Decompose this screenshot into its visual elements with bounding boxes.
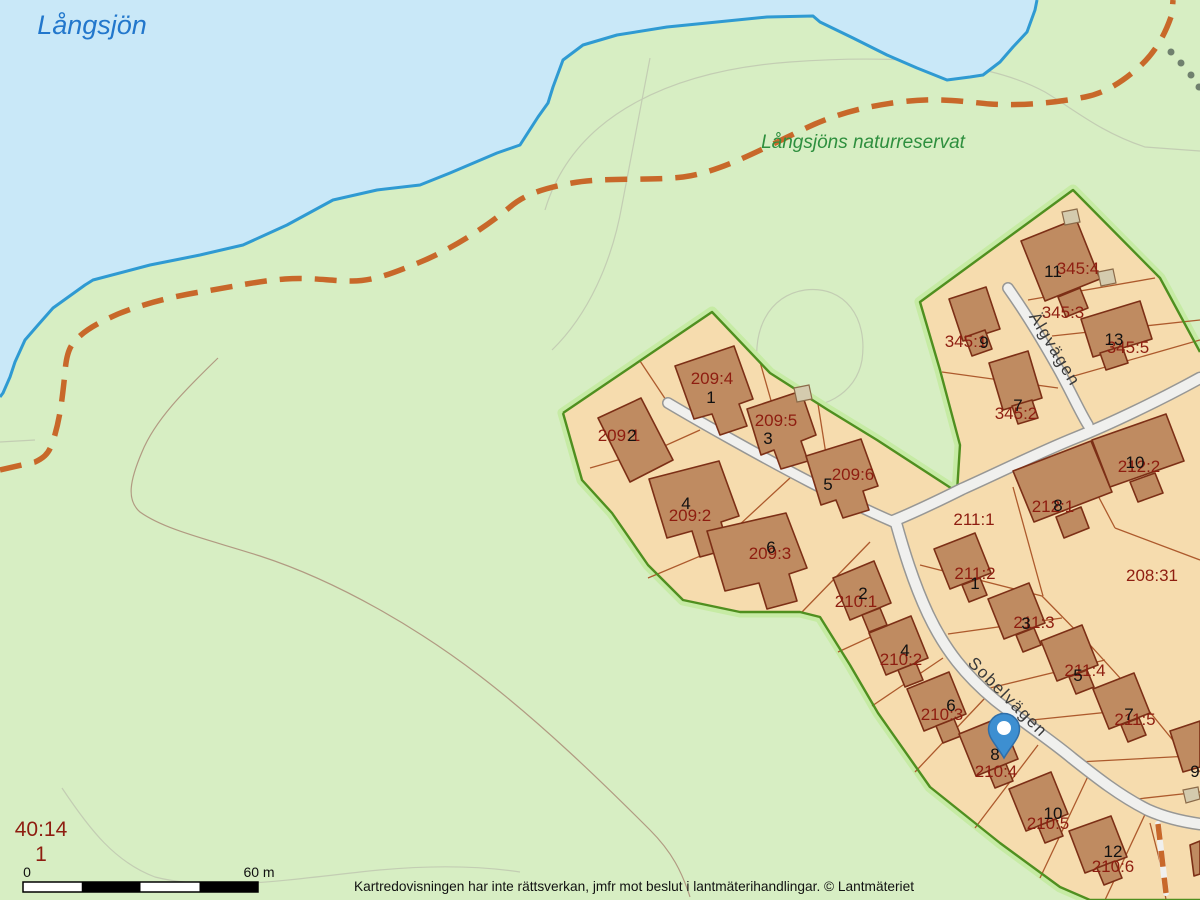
house-number: 9 bbox=[1190, 762, 1199, 781]
house-number: 7 bbox=[1013, 396, 1022, 415]
house-number: 2 bbox=[627, 426, 636, 445]
house-number: 10 bbox=[1126, 453, 1145, 472]
house-number: 4 bbox=[681, 494, 690, 513]
map-canvas[interactable]: 209:1 209:4 209:5 209:6 209:2 209:3 210:… bbox=[0, 0, 1200, 900]
house-number: 3 bbox=[1021, 614, 1030, 633]
house-number: 1 bbox=[706, 388, 715, 407]
parcel-label: 345:4 bbox=[1057, 259, 1100, 278]
house-number: 5 bbox=[823, 475, 832, 494]
house-number: 6 bbox=[946, 696, 955, 715]
parcel-label: 210:1 bbox=[835, 592, 878, 611]
parcel-label: 209:6 bbox=[832, 465, 875, 484]
nature-reserve-label: Långsjöns naturreservat bbox=[761, 132, 966, 153]
house-number: 1 bbox=[970, 574, 979, 593]
scale-zero-label: 0 bbox=[23, 864, 31, 880]
copyright-disclaimer: Kartredovisningen har inte rättsverkan, … bbox=[354, 878, 914, 894]
scale-distance-label: 60 m bbox=[243, 864, 274, 880]
house-number: 13 bbox=[1105, 330, 1124, 349]
house-number: 11 bbox=[1044, 262, 1062, 281]
outbuilding bbox=[794, 385, 812, 402]
parcel-label: 210:3 bbox=[921, 705, 964, 724]
parcel-label: 1 bbox=[35, 843, 47, 866]
house-number: 10 bbox=[1044, 804, 1063, 823]
parcel-label: 210:4 bbox=[975, 762, 1018, 781]
parcel-label: 209:5 bbox=[755, 411, 798, 430]
map-svg[interactable]: 209:1 209:4 209:5 209:6 209:2 209:3 210:… bbox=[0, 0, 1200, 900]
house-number: 2 bbox=[858, 584, 867, 603]
house-number: 9 bbox=[979, 333, 988, 352]
parcel-label: 211:3 bbox=[1013, 613, 1054, 632]
outbuilding bbox=[1062, 209, 1080, 225]
outbuilding bbox=[1098, 269, 1116, 286]
parcel-label: 211:4 bbox=[1064, 661, 1105, 680]
house-number: 12 bbox=[1104, 842, 1123, 861]
parcel-label: 211:5 bbox=[1114, 710, 1155, 729]
parcel-label: 211:1 bbox=[953, 510, 994, 529]
parcel-label: 208:31 bbox=[1126, 566, 1178, 585]
house-number: 5 bbox=[1073, 666, 1082, 685]
house-number: 3 bbox=[763, 429, 772, 448]
lake-name-label: Långsjön bbox=[37, 10, 147, 40]
parcel-label: 40:14 bbox=[15, 818, 68, 841]
house-number: 4 bbox=[900, 641, 909, 660]
house-number: 7 bbox=[1124, 705, 1133, 724]
house-number: 8 bbox=[1053, 496, 1062, 515]
house-number: 6 bbox=[766, 538, 775, 557]
parcel-label: 209:4 bbox=[691, 369, 734, 388]
